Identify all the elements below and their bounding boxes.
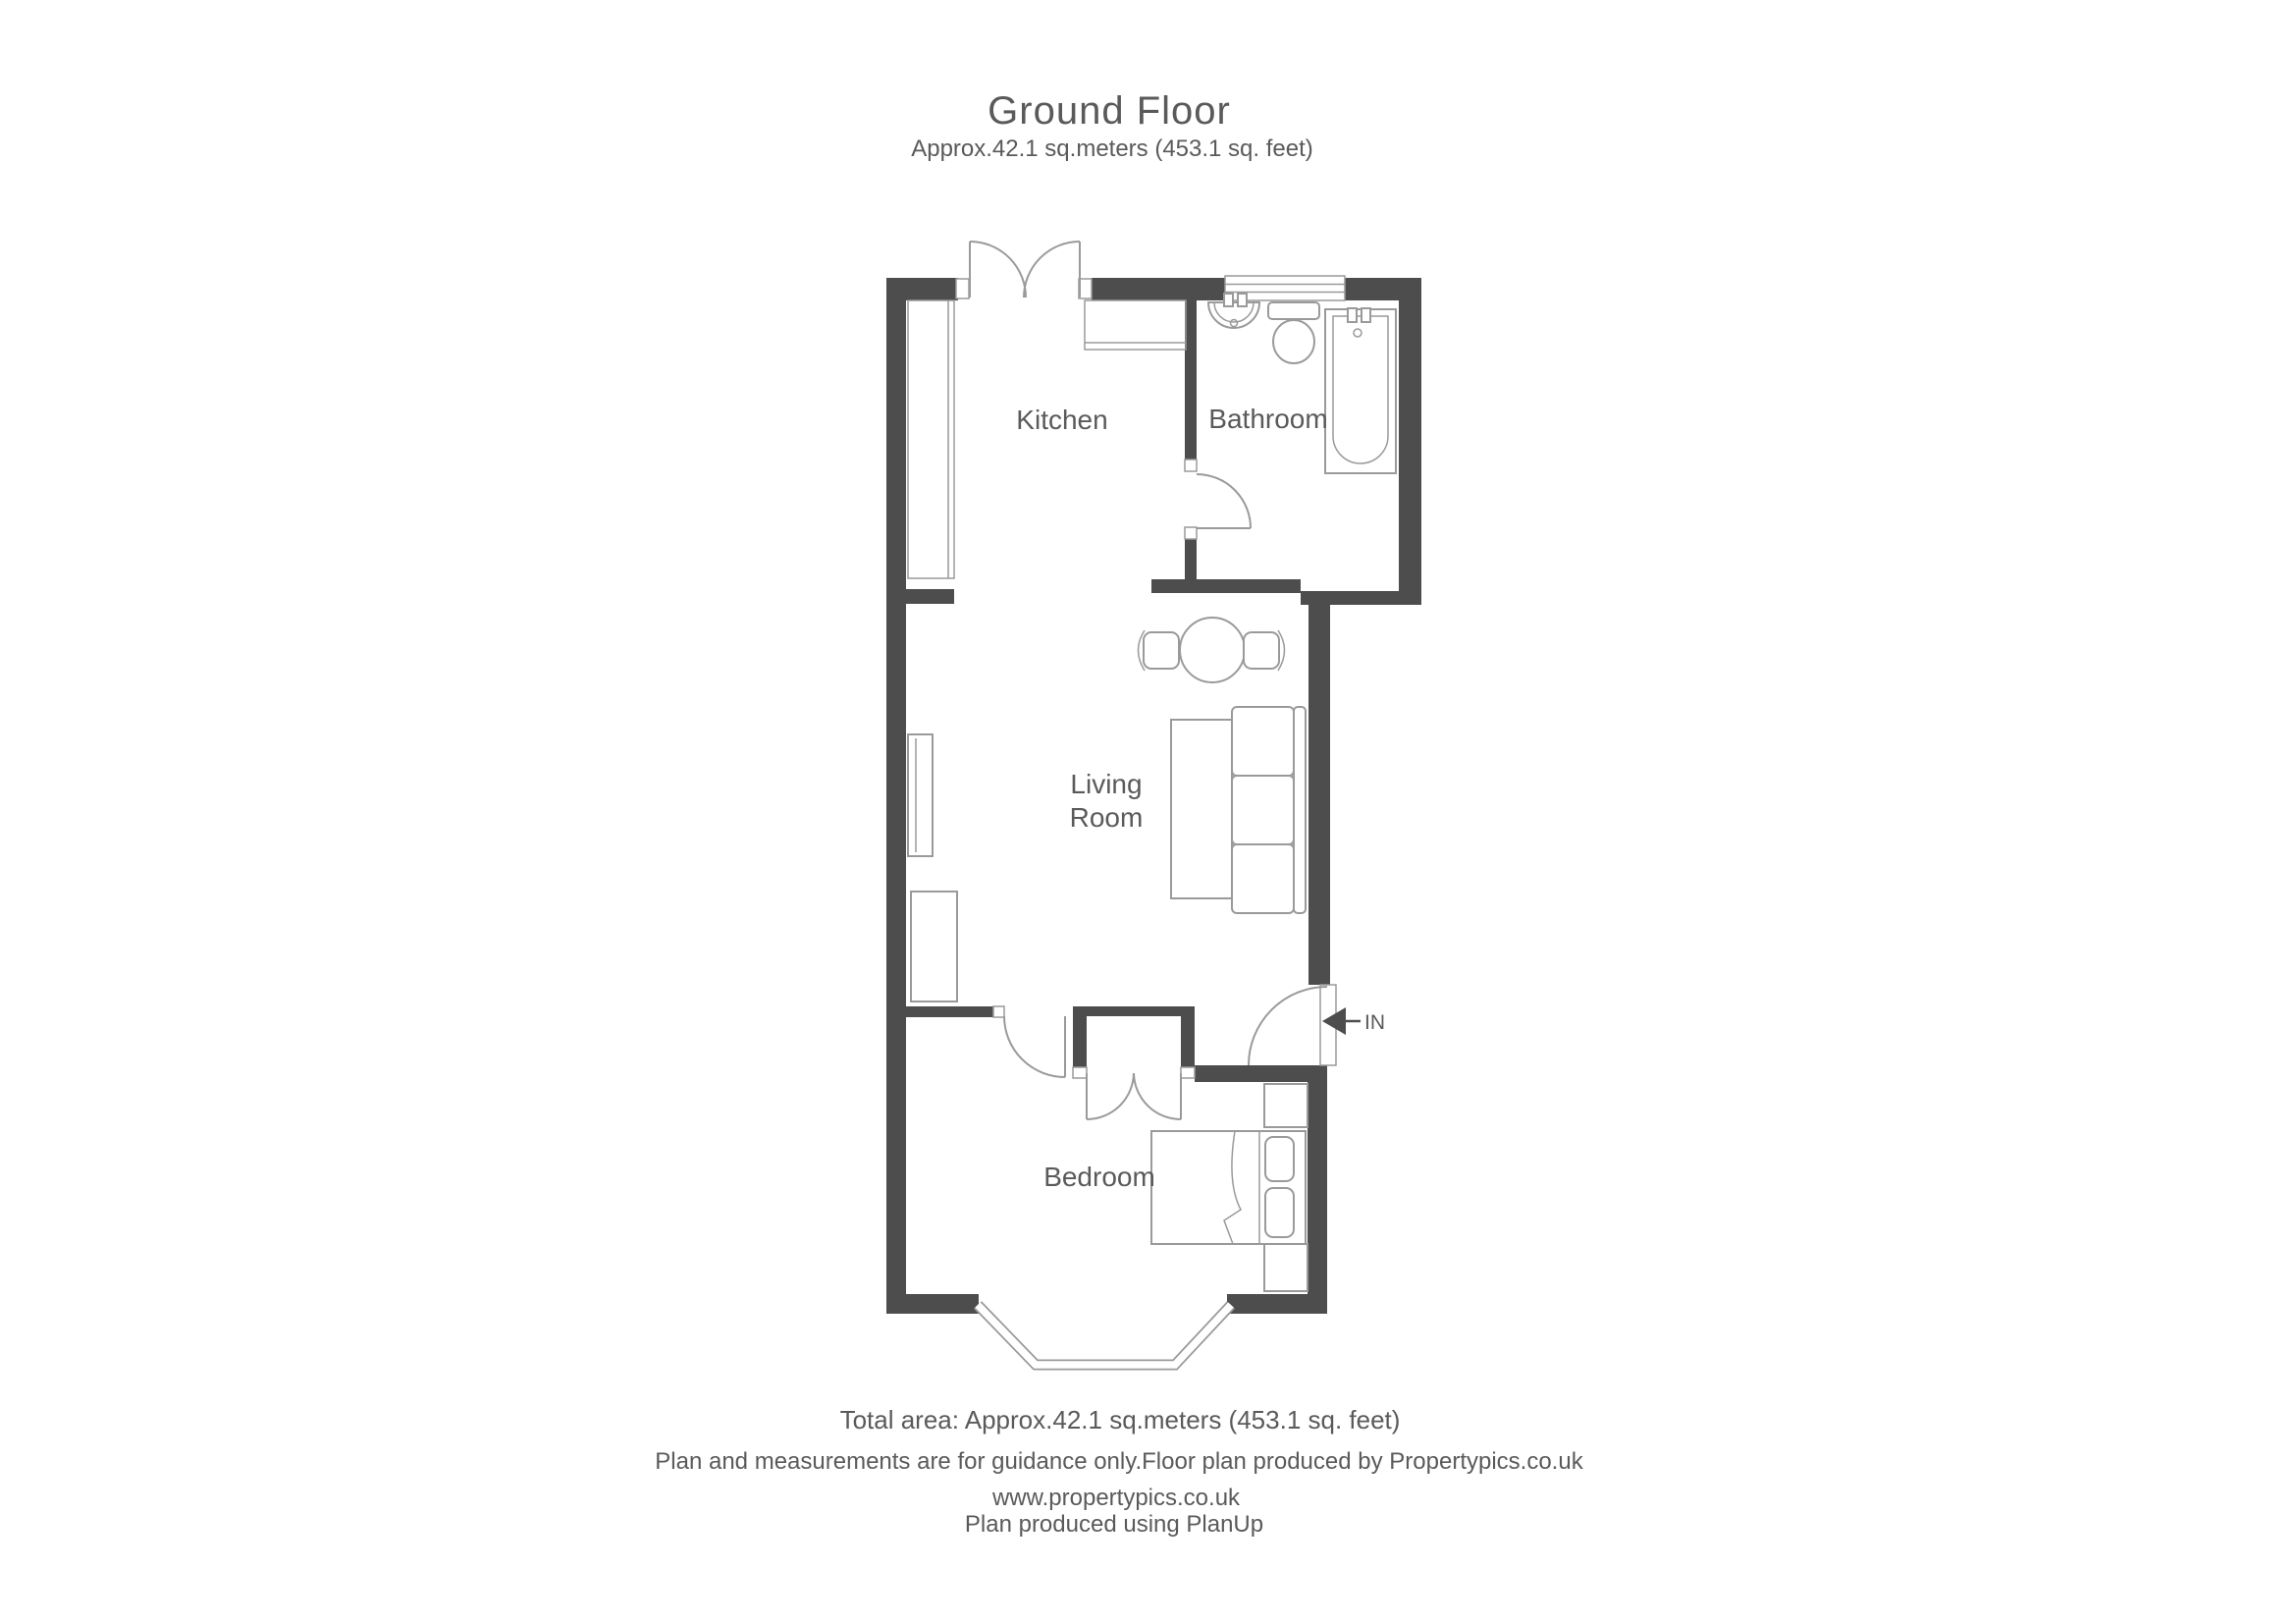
jamb <box>956 279 969 298</box>
page-title: Ground Floor <box>988 89 1231 133</box>
total-area-text: Total area: Approx.42.1 sq.meters (453.1… <box>840 1405 1401 1434</box>
entrance-door <box>1249 985 1336 1065</box>
entrance-label: IN <box>1364 1011 1385 1034</box>
footer: Total area: Approx.42.1 sq.meters (453.1… <box>655 1405 1583 1538</box>
jamb <box>1181 1067 1195 1078</box>
bathtub <box>1325 308 1396 473</box>
jamb <box>1073 1067 1087 1078</box>
kitchen-label: Kitchen <box>1016 405 1107 435</box>
bathroom-door <box>1197 474 1251 528</box>
living-room-label-line1: Living <box>1070 769 1142 799</box>
dining-table-and-chairs <box>1139 618 1285 682</box>
jamb <box>993 1006 1004 1017</box>
wall-kitchen-stub <box>906 589 954 604</box>
bedroom-furniture <box>1151 1084 1308 1291</box>
website-text: www.propertypics.co.uk <box>991 1485 1241 1511</box>
wall-bathroom-bottom-left <box>1151 579 1301 593</box>
kitchen-counter-left <box>908 300 954 578</box>
kitchen-fixtures <box>908 300 1186 578</box>
bathroom-label: Bathroom <box>1208 404 1327 434</box>
wall-divider-stub <box>1185 539 1197 579</box>
wall-living-right <box>1308 593 1330 985</box>
produced-with-text: Plan produced using PlanUp <box>965 1511 1263 1538</box>
floor-plan-page: Ground Floor Approx.42.1 sq.meters (453.… <box>0 0 2296 1623</box>
bed <box>1151 1131 1306 1244</box>
wall-closet-left-leg <box>1073 1016 1087 1067</box>
wall-bedroom-right <box>1308 1065 1327 1314</box>
entrance-marker: IN <box>1322 1007 1385 1035</box>
entrance-arrow-icon <box>1322 1007 1346 1035</box>
wall-closet-right-leg <box>1181 1016 1195 1067</box>
bay-window <box>978 1305 1231 1365</box>
wall-living-bedroom-left <box>906 1006 993 1017</box>
floor-plan-canvas: Ground Floor Approx.42.1 sq.meters (453.… <box>0 0 2296 1623</box>
wall-kitchen-bathroom-divider <box>1185 300 1197 460</box>
cabinet <box>911 892 957 1001</box>
wall-bathroom-right <box>1399 278 1421 605</box>
wall-bedroom-bottom-right <box>1227 1294 1327 1314</box>
bedroom-door <box>1004 1016 1065 1077</box>
jamb <box>1185 527 1197 539</box>
bedroom-label: Bedroom <box>1043 1162 1155 1192</box>
wall-left <box>886 278 906 1314</box>
wall-top-mid <box>1092 278 1225 300</box>
closet-double-doors <box>1087 1073 1181 1119</box>
kitchen-counter-top <box>1085 300 1186 350</box>
door-jambs <box>956 279 1197 1078</box>
wall-entry-bottom <box>1195 1065 1308 1082</box>
sofa <box>1171 707 1306 913</box>
sideboard <box>908 734 933 856</box>
kitchen-french-doors <box>970 242 1080 298</box>
wall-closet-top <box>1073 1006 1195 1016</box>
disclaimer-text: Plan and measurements are for guidance o… <box>655 1448 1583 1475</box>
page-subtitle: Approx.42.1 sq.meters (453.1 sq. feet) <box>911 135 1313 162</box>
jamb <box>1185 460 1197 471</box>
doors <box>970 242 1336 1119</box>
bedside-table-top <box>1264 1084 1308 1127</box>
header: Ground Floor Approx.42.1 sq.meters (453.… <box>911 89 1313 162</box>
bedside-table-bottom <box>1264 1244 1308 1291</box>
toilet <box>1268 302 1319 363</box>
bathroom-fixtures <box>1208 294 1396 473</box>
living-room-label-line2: Room <box>1070 802 1144 833</box>
